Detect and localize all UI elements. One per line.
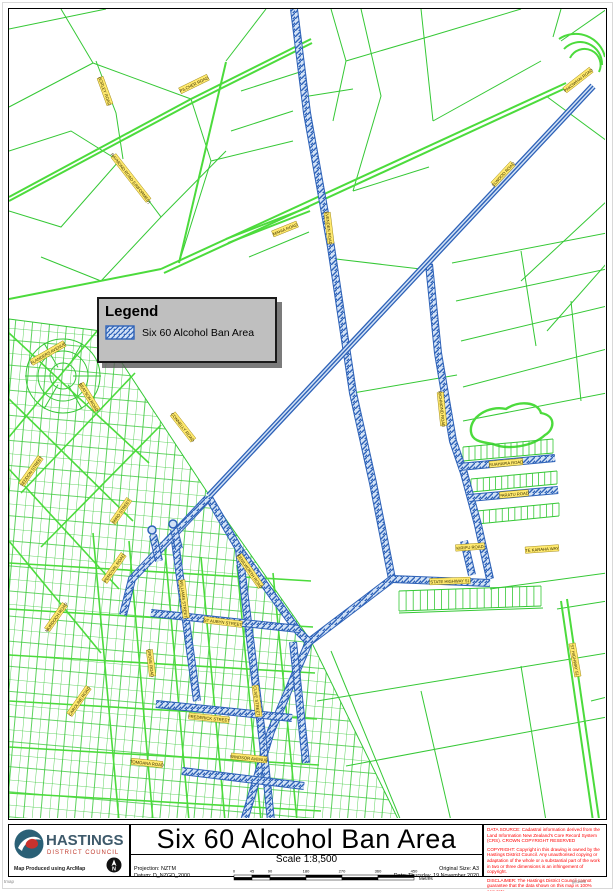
svg-text:270: 270 xyxy=(339,869,346,874)
scale-text: Scale 1:8,500 xyxy=(131,855,482,865)
svg-text:0: 0 xyxy=(233,869,236,874)
map-frame: PILCHER ROADBORLEY ROADRAYMOND ROAD (UNF… xyxy=(8,8,607,820)
datum-text: Datum: D_NZGD_2000 xyxy=(134,873,220,880)
road-label: RUAHAPIA ROAD xyxy=(489,458,524,467)
legend-title: Legend xyxy=(105,303,269,320)
svg-text:RAYMOND ROAD (UNFORMED): RAYMOND ROAD (UNFORMED) xyxy=(110,152,153,205)
road-label: CONNELLY ROAD xyxy=(170,411,197,443)
ban-area-swatch xyxy=(105,325,135,340)
map-page: PILCHER ROADBORLEY ROADRAYMOND ROAD (UNF… xyxy=(0,0,615,891)
svg-text:180: 180 xyxy=(303,869,310,874)
north-arrow-icon: N xyxy=(106,857,122,873)
logo-name: HASTINGS xyxy=(46,832,124,849)
urban-parcel-area xyxy=(9,319,399,818)
micro-text-right: gisweb xyxy=(572,879,586,884)
svg-text:N: N xyxy=(112,867,116,873)
road-label: STATE HIGHWAY 51 xyxy=(430,577,471,585)
svg-text:45: 45 xyxy=(250,869,255,874)
road-label: RAYMOND ROAD (UNFORMED) xyxy=(109,151,153,205)
title-block: Six 60 Alcohol Ban Area Scale 1:8,500 Pr… xyxy=(130,824,483,877)
scalebar: 04590180270360450Metres xyxy=(220,865,367,879)
road-label: TE KARAHA WAY xyxy=(525,545,559,554)
svg-text:450: 450 xyxy=(411,869,418,874)
ban-area-boundary xyxy=(123,9,593,818)
svg-text:Metres: Metres xyxy=(419,876,434,881)
svg-text:90: 90 xyxy=(268,869,273,874)
legend-box: Legend Six 60 Alcohol Ban Area xyxy=(97,297,277,363)
ban-area-map: PILCHER ROADBORLEY ROADRAYMOND ROAD (UNF… xyxy=(9,9,605,818)
map-title: Six 60 Alcohol Ban Area xyxy=(131,825,482,855)
notices-cell: DATA SOURCE: Cadastral information deriv… xyxy=(483,824,607,877)
copyright-notice: COPYRIGHT: Copyright in this drawing is … xyxy=(487,847,603,875)
council-logo-cell: HASTINGS DISTRICT COUNCIL Map Produced u… xyxy=(8,824,130,877)
data-source-notice: DATA SOURCE: Cadastral information deriv… xyxy=(487,827,603,844)
road-label: PILCHER ROAD xyxy=(178,74,209,94)
svg-text:360: 360 xyxy=(375,869,382,874)
svg-text:CONNELLY ROAD: CONNELLY ROAD xyxy=(170,412,196,443)
logo-subtitle: DISTRICT COUNCIL xyxy=(47,850,119,856)
legend-item-label: Six 60 Alcohol Ban Area xyxy=(142,327,254,339)
svg-text:PILCHER ROAD: PILCHER ROAD xyxy=(179,75,209,93)
road-label: PARATU ROAD xyxy=(499,490,529,499)
produced-note: Map Produced using ArcMap xyxy=(14,866,85,872)
projection-block: Projection: NZTM Datum: D_NZGD_2000 xyxy=(131,865,220,879)
road-label: BORLEY ROAD xyxy=(97,76,113,107)
footer: HASTINGS DISTRICT COUNCIL Map Produced u… xyxy=(8,824,607,877)
micro-text-left: tmap xyxy=(4,879,14,884)
